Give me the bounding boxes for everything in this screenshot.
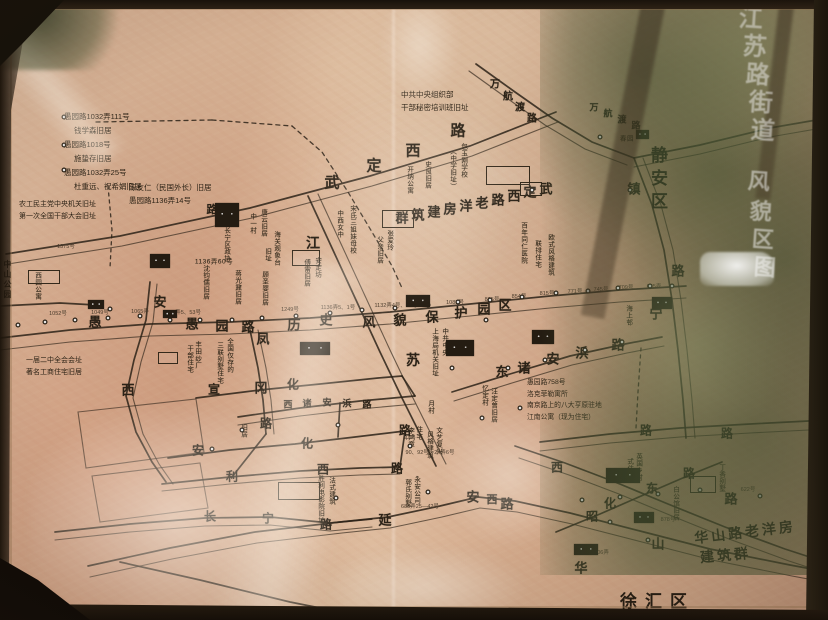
road-name-char: 路 [362,398,371,411]
road-name-char: 诸 [517,358,530,377]
poi-label: 欧式风格建筑 [546,234,553,276]
note-line: 中共中央组织部 [401,88,469,101]
note-line: 农工民主党中央机关旧址 [0,199,96,211]
road-name-char: 建 [427,202,440,221]
road-name-char: 路 [241,317,254,336]
road-name-char: 貌 [393,310,406,329]
road-name-char: 老 [475,193,488,212]
building-sketch [292,250,320,266]
road-name-char: 东 [495,362,508,381]
building-sketch [446,340,474,356]
poi-label: 丰田纱厂 [193,341,200,369]
numbered-marker-dot [240,428,245,433]
road-name-char: 渡 [617,113,626,126]
note-line: 一届二中全会会址 [26,355,82,367]
poi-label: 汪定曾旧居 [489,388,496,423]
poi-note-chen-youren: 陈友仁（民国外长）旧居 愚园路1136弄14号 [129,181,212,207]
lane-number-label: 709号 [619,283,634,291]
road-name-char: 浜 [575,343,588,362]
road-name-char: 区 [498,295,511,314]
numbered-marker-dot [426,490,431,495]
note-line: 江南公寓（现为住宅） [527,412,602,424]
poi-label: 三联别墅住宅 [215,342,222,384]
poi-label: 开纳公寓 [405,166,412,194]
building-sketch [88,300,104,309]
road-name-char: 路 [671,261,684,280]
building-sketch [278,482,320,500]
road-name-char: 路 [724,489,737,508]
numbered-marker-dot [628,188,633,193]
road-name-char: 西 [283,398,292,411]
numbered-marker-dot [586,289,591,294]
road-name-char: 西 [487,491,498,507]
road-name-char: 安 [546,349,559,368]
numbered-marker-dot [260,316,265,321]
building-sketch [652,297,672,309]
road-name-char: 长 [204,508,216,525]
road-name-char: 安 [192,442,204,459]
numbered-marker-dot [646,538,651,543]
numbered-marker-dot [670,284,675,289]
building-sketch [520,182,542,196]
poi-label: 联排住宅 [533,240,540,268]
numbered-marker-dot [294,314,299,319]
road-name-char: 园 [215,316,228,335]
road-name-char: 路 [450,120,465,141]
lane-number-label: 44号 [404,434,416,442]
poi-label: 沈钧儒旧居 [201,265,208,300]
list-line: 施蛰存旧居 [64,152,142,166]
numbered-marker-dot [106,316,111,321]
road-name-char: 路 [260,415,272,432]
road-name-char: 路 [391,460,403,477]
numbered-marker-dot [620,340,625,345]
building-sketch [690,476,716,493]
road-name-char: 凤 [256,329,269,348]
lane-number-label: 745号 [594,285,609,293]
road-name-char: 保 [425,307,438,326]
road-name-char: 路 [491,190,504,209]
lane-number-label: 90、92号、24弄6号 [406,448,455,456]
poi-label: 旧址 [263,248,270,262]
numbered-marker-dot [518,406,523,411]
note-line: 洛克菲勒寓所 [527,389,602,401]
poi-label: 丁香别墅 [717,464,724,492]
poi-label: 宋氏三姐妹母校 [348,205,355,254]
road-name-char: 苏 [406,350,420,370]
numbered-marker-dot [230,318,235,323]
poi-label: 月村 [426,400,433,414]
poi-label: 永安公司 [412,476,419,504]
road-name-char: 山 [651,534,664,553]
note-line: 南京路上的八大亨原驻地 [527,400,602,412]
poi-label: 中一村 [248,213,255,234]
road-name-char: 安 [466,487,479,506]
numbered-marker-dot [583,348,588,353]
numbered-marker-dot [336,423,341,428]
building-sketch [634,512,654,523]
road-name-char: 宁 [262,510,274,527]
lane-number-label: 771号 [568,287,583,295]
numbered-marker-dot [168,318,173,323]
poi-label: 海上邨 [624,305,631,326]
poi-label: 中西女中 [335,210,342,238]
road-name-char: 武 [324,172,339,193]
poi-label: 海关观象台 [272,231,279,266]
list-line: 愚园路1032弄111号 [64,110,142,124]
building-sketch [28,270,60,284]
poi-label: 春园 [620,135,634,142]
poi-label: 干部住宅 [185,345,192,373]
lane-number-label: 688弄25—42号 [401,502,439,510]
road-name-char: 昭 [586,508,598,525]
numbered-marker-dot [618,495,623,500]
road-name-char: 华 [574,558,587,577]
list-line: 愚园路1032弄25号 [64,166,142,180]
building-sketch [606,468,640,483]
numbered-marker-dot [656,492,661,497]
poi-note-org-dept: 中共中央组织部 干部秘密培训班旧址 [401,88,469,114]
note-line: 干部秘密培训班旧址 [401,101,469,114]
road-name-char: 定 [366,155,381,176]
numbered-marker-dot [506,366,511,371]
label-zhongshan-park: 中山公园 [2,260,13,300]
poi-note-yuyuan-758: 愚园路758号 洛克菲勒寓所 南京路上的八大亨原驻地 江南公寓（现为住宅） [527,377,602,423]
road-name-char: 利 [226,468,238,485]
poi-label: 包玉刚学校 [459,143,466,178]
poi-label: 父亲旧居 [375,236,382,264]
note-line: 陈友仁（民国外长）旧居 [129,181,212,194]
lane-number-label: 815号 [540,289,555,297]
road-name-char: 西 [121,380,134,399]
road-name-char: 万 [589,101,598,114]
numbered-marker-dot [328,311,333,316]
poi-label: 长宁区政协 [222,227,229,262]
road-name-char: 路 [500,494,513,513]
numbered-marker-dot [488,298,493,303]
list-line: 愚园路1018号 [64,138,142,152]
road-name-char: 浜 [342,397,351,410]
road-name-char: 诸 [302,397,311,410]
numbered-marker-dot [456,300,461,305]
numbered-marker-dot [334,496,339,501]
road-name-char: 冈 [254,378,267,397]
road-name-char: 愚 [185,314,198,333]
poi-label: 全国仅存的 [225,338,232,373]
lane-number-label: 1052号 [49,309,67,317]
poi-label: 蒋光鼐旧居 [233,270,240,305]
district-label-jingan: 静安区 [645,146,670,215]
numbered-marker-dot [108,307,113,312]
road-name-char: 化 [287,376,299,393]
road-name-char: 安 [322,396,331,409]
building-sketch [382,210,414,228]
numbered-marker-dot [360,308,365,313]
numbered-marker-dot [43,320,48,325]
road-name-char: 航 [503,88,513,103]
road-name-char: 洋 [459,196,472,215]
building-sketch [406,295,430,307]
road-name-char: 路 [721,425,733,442]
building-sketch [150,254,170,268]
poi-note-plenary: 一届二中全会会址 著名工商住宅旧居 [26,355,82,379]
lane-number-label: 1136弄5、1号 [321,303,355,311]
road-name-char: 房 [443,199,456,218]
poi-label: 张爱玲 [385,230,392,251]
building-sketch [532,330,554,344]
road-name-char: 万 [490,76,500,91]
road-name-char: 化 [301,435,313,452]
numbered-marker-dot [608,520,613,525]
road-name-char: 渡 [515,99,525,114]
building-sketch [163,310,177,318]
numbered-marker-dot [758,494,763,499]
numbered-marker-dot [543,358,548,363]
numbered-marker-dot [16,323,21,328]
poi-label: 忆定村 [480,385,487,406]
numbered-marker-dot [598,135,603,140]
poi-label: 唐云旧居 [259,209,266,237]
building-sketch [574,544,598,555]
building-sketch [215,203,239,227]
lane-number-label: 1375号 [57,242,75,250]
lane-number-label: 878号 [661,515,676,523]
road-name-char: 路 [527,110,537,125]
numbered-marker-dot [73,318,78,323]
road-name-char: 西 [551,459,563,476]
numbered-marker-dot [408,444,413,449]
lane-number-label: 1249号 [281,305,299,313]
numbered-marker-dot [648,284,653,289]
poi-note-left-edge: 农工民主党中央机关旧址 第一次全国干部大会旧址 [0,199,96,223]
road-name-char: 化 [604,495,616,512]
lane-number-label: 622号 [741,485,756,493]
note-line: 著名工商住宅旧居 [26,367,82,379]
note-line: 愚园路758号 [527,377,602,389]
building-sketch [158,352,178,364]
road-name-char: 路 [640,422,652,439]
poi-label: （中学旧址） [448,148,455,190]
poi-label: 法式建筑 [327,477,334,505]
road-name-char: 西 [405,140,420,161]
numbered-marker-dot [138,314,143,319]
district-label-xuhui: 徐汇区 [620,587,695,612]
numbered-marker-dot [520,295,525,300]
poi-label: 顾圣婴旧居 [260,271,267,306]
note-line: 第一次全国干部大会旧址 [0,211,96,223]
numbered-marker-dot [450,366,455,371]
numbered-marker-dot [393,306,398,311]
list-line: 钱学森旧居 [64,124,142,138]
numbered-marker-dot [210,447,215,452]
poi-label: 史良旧居 [423,161,430,189]
numbered-marker-dot [480,416,485,421]
numbered-marker-dot [484,318,489,323]
road-name-char: 西 [507,186,520,205]
building-sketch [300,342,330,355]
note-line: 愚园路1136弄14号 [129,194,212,207]
road-name-char: 延 [378,510,391,529]
poi-label: 百年同仁医院 [519,222,526,264]
numbered-marker-dot [198,318,203,323]
framed-map-photo: 武定西路万航渡路万航渡路镇路宁路江苏愚愚园路历史风貌保护园区凤冈路安西宣化西诸安… [0,0,828,620]
numbered-marker-dot [554,291,559,296]
building-sketch [636,130,649,139]
road-name-char: 风 [362,312,375,331]
numbered-marker-dot [616,286,621,291]
poi-label: 上海局机关旧址 [430,328,437,377]
numbered-marker-dot [580,498,585,503]
road-name-char: 航 [603,107,612,120]
